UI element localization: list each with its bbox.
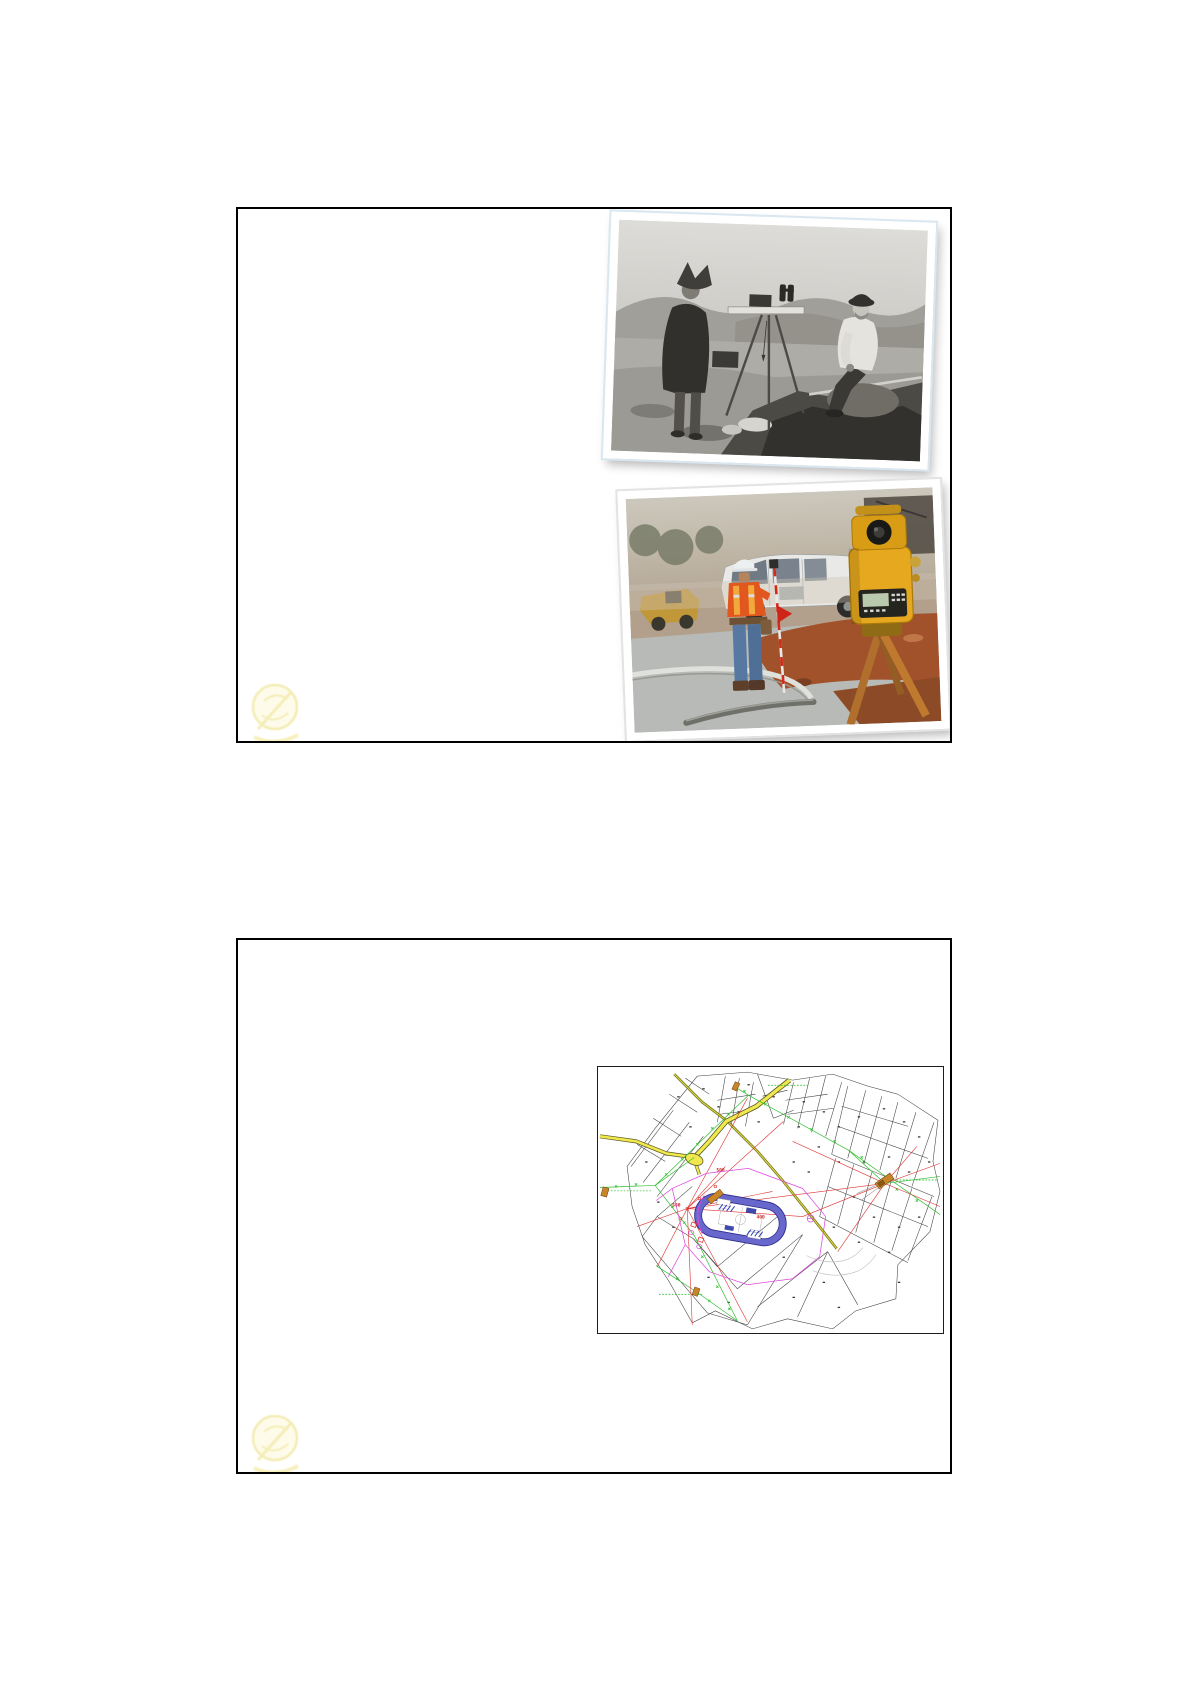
slide-2: 500 500 400 [236,938,952,1474]
modern-photo-illustration [626,487,942,733]
cadastral-map-drawing: 500 500 400 [598,1067,943,1333]
carry-handle [855,504,901,515]
crest-icon [248,677,302,743]
watermark-logo [248,677,302,743]
station-label-400: 400 [756,1215,765,1221]
historical-surveyors-photo: Black-and-white photograph: two early su… [603,211,936,469]
crest-icon [248,1408,302,1474]
map-caption: Cadastral survey plan: numbered land par… [598,1333,599,1334]
handout-page: Black-and-white photograph: two early su… [0,0,1190,1684]
historical-photo-illustration [611,220,928,462]
station-label-500a: 500 [716,1167,725,1173]
modern-photo-caption: Color photograph: construction surveyor … [635,733,636,734]
cadastral-map: 500 500 400 [597,1066,944,1334]
plane-table [728,307,804,314]
slide-1: Black-and-white photograph: two early su… [236,207,952,743]
historical-photo-caption: Black-and-white photograph: two early su… [611,451,612,452]
lcd-screen [862,593,888,607]
equipment-box [712,351,739,368]
alidade [749,294,771,307]
watermark-logo [248,1408,302,1474]
modern-surveyor-photo: Color photograph: construction surveyor … [617,479,949,741]
jeans [733,624,748,681]
